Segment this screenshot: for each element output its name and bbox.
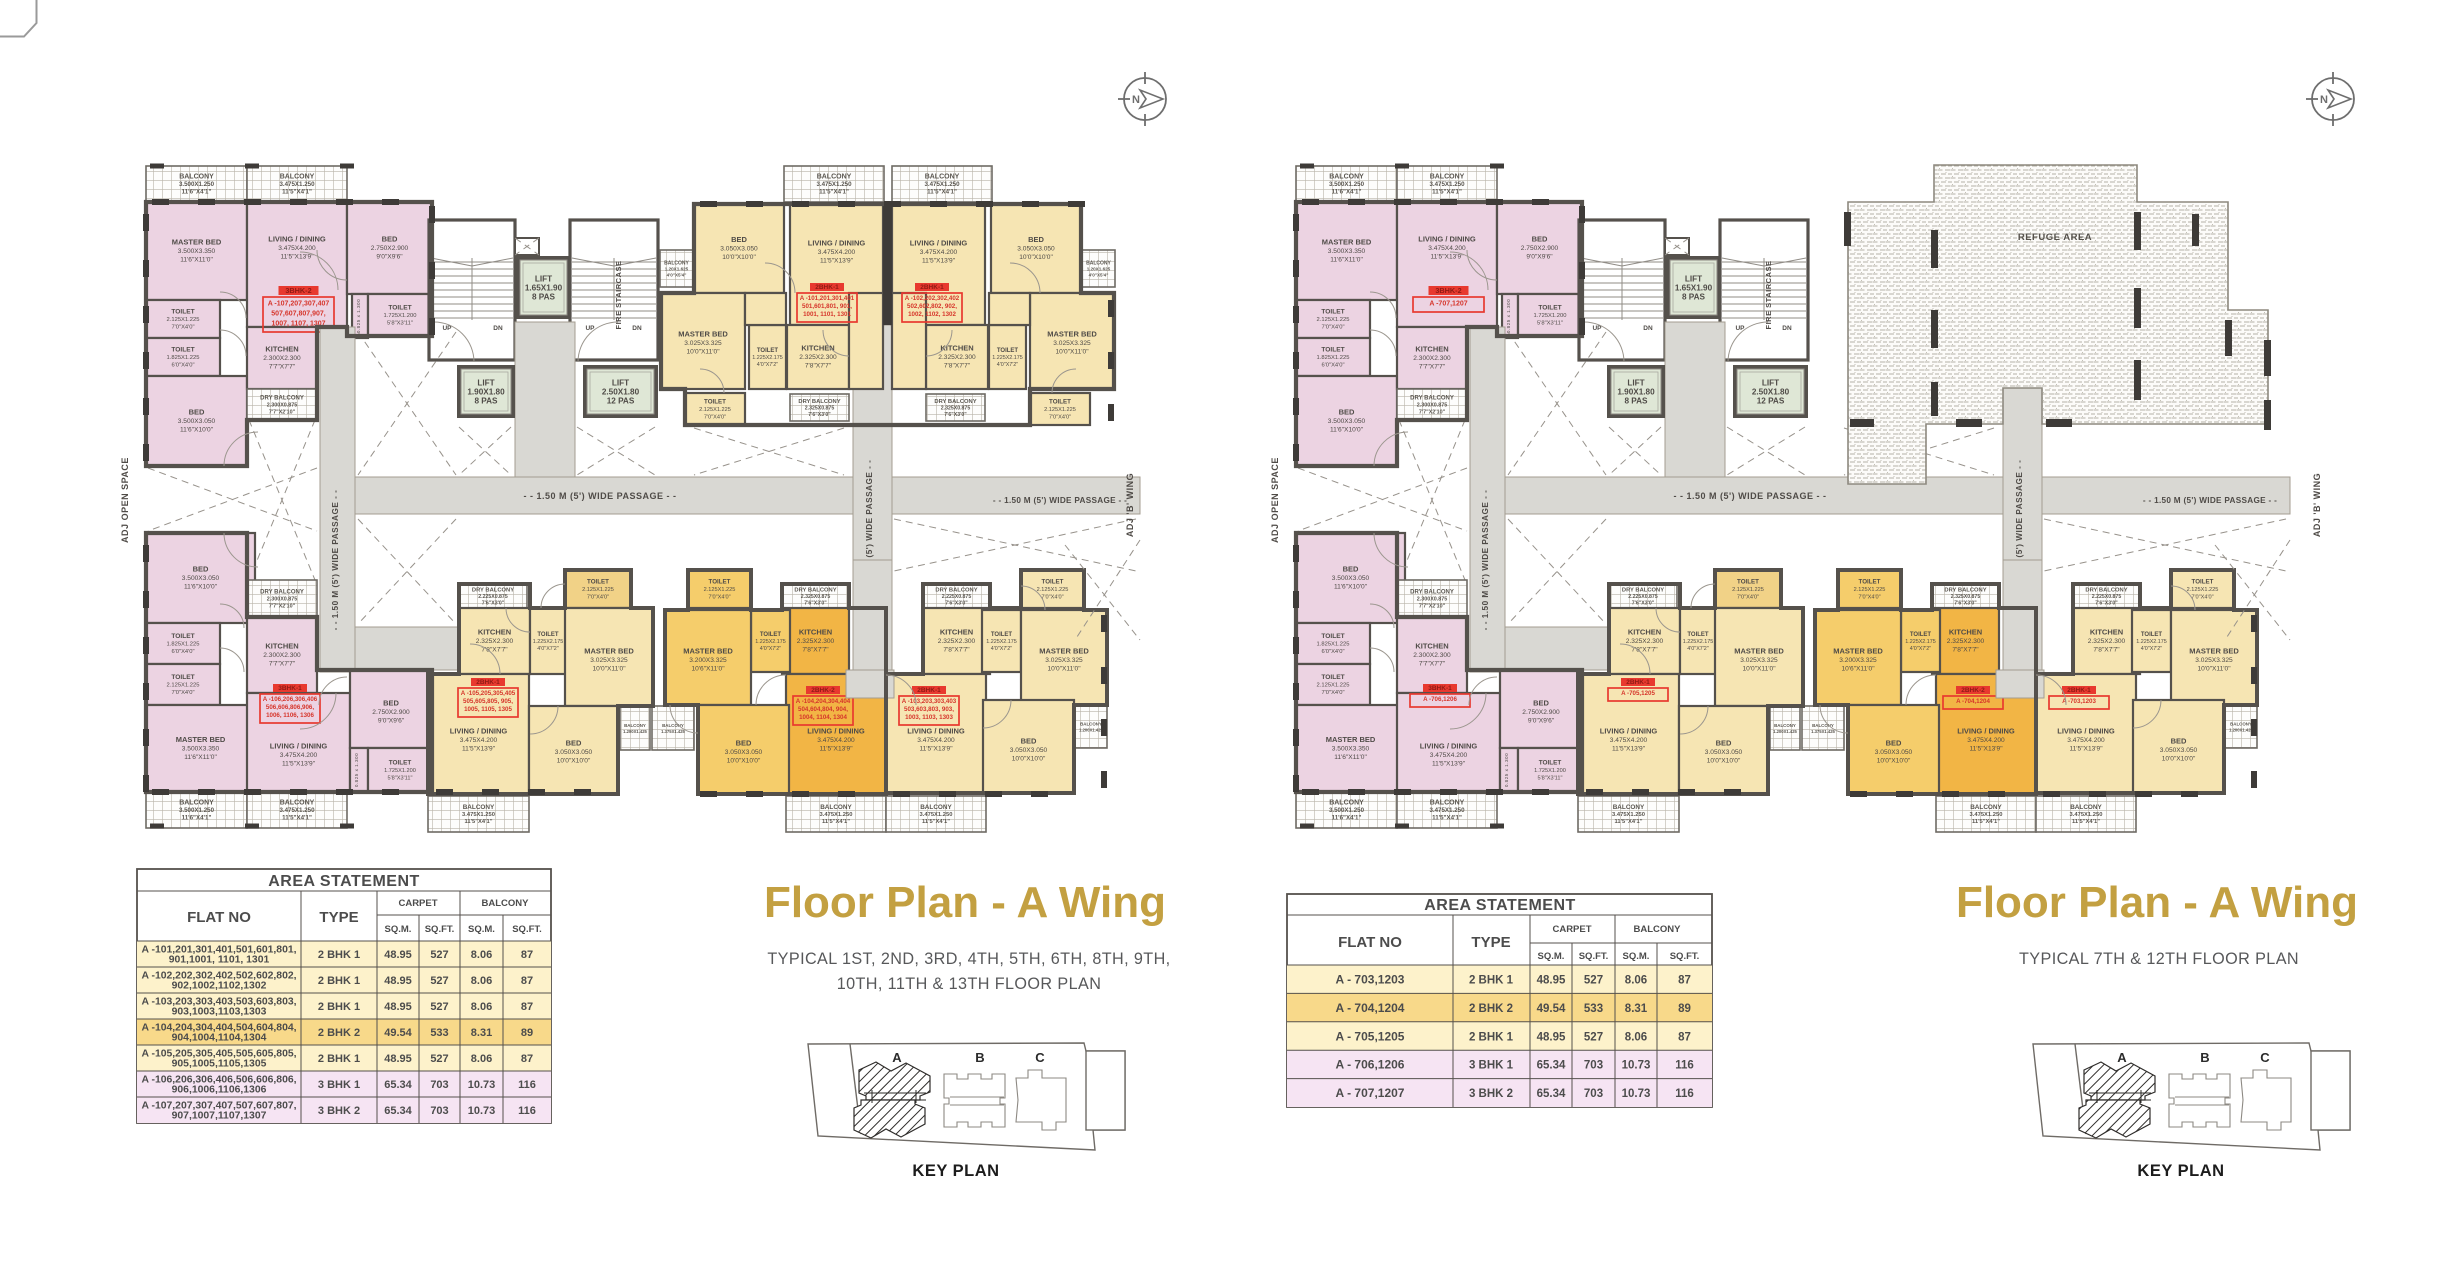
- svg-text:11'5"X4'1": 11'5"X4'1": [1615, 819, 1643, 825]
- svg-text:BED: BED: [189, 408, 205, 417]
- svg-text:3.500X1.250: 3.500X1.250: [179, 181, 215, 188]
- svg-text:BALCONY: BALCONY: [1430, 799, 1465, 806]
- svg-text:TYPICAL 7TH & 12TH FLOOR PLAN: TYPICAL 7TH & 12TH FLOOR PLAN: [2019, 950, 2299, 968]
- svg-text:3.500X3.050: 3.500X3.050: [1332, 575, 1370, 582]
- svg-text:BALCONY: BALCONY: [2070, 804, 2102, 811]
- svg-text:BED: BED: [1028, 235, 1044, 244]
- svg-text:KITCHEN: KITCHEN: [2090, 628, 2123, 637]
- svg-text:1002, 1102, 1302: 1002, 1102, 1302: [908, 311, 956, 318]
- svg-text:BALCONY: BALCONY: [817, 173, 852, 180]
- svg-text:1003, 1103, 1303: 1003, 1103, 1303: [905, 714, 953, 721]
- svg-text:KITCHEN: KITCHEN: [265, 642, 298, 651]
- svg-text:10.73: 10.73: [468, 1079, 496, 1091]
- svg-text:SQ.FT.: SQ.FT.: [1670, 951, 1700, 962]
- svg-text:6'0"X4'0": 6'0"X4'0": [171, 363, 194, 369]
- svg-text:3.475X1.250: 3.475X1.250: [924, 181, 960, 188]
- svg-text:10'0"X10'0": 10'0"X10'0": [1877, 757, 1911, 764]
- svg-text:7'6"X3'0": 7'6"X3'0": [808, 412, 831, 418]
- svg-text:10'0"X11'0": 10'0"X11'0": [1055, 348, 1089, 355]
- svg-text:1.65X1.90: 1.65X1.90: [525, 284, 563, 293]
- svg-text:TOILET: TOILET: [757, 348, 779, 354]
- svg-text:N: N: [1132, 94, 1140, 106]
- svg-text:10'0"X10'0": 10'0"X10'0": [557, 757, 591, 764]
- svg-text:7'8"X7'7": 7'8"X7'7": [2093, 646, 2120, 653]
- svg-text:A -101,201,301,401: A -101,201,301,401: [800, 295, 855, 302]
- svg-text:LIVING / DINING: LIVING / DINING: [1418, 235, 1476, 244]
- svg-text:2.300X0.875: 2.300X0.875: [1417, 403, 1448, 409]
- svg-text:KITCHEN: KITCHEN: [1628, 628, 1661, 637]
- svg-text:3.025X3.325: 3.025X3.325: [590, 657, 628, 664]
- svg-text:1.225X2.175: 1.225X2.175: [1905, 639, 1936, 645]
- svg-text:7'0"X4'0": 7'0"X4'0": [171, 325, 194, 331]
- svg-text:1.375X1.425: 1.375X1.425: [661, 729, 685, 734]
- svg-text:0.825 x 1.300: 0.825 x 1.300: [356, 299, 361, 333]
- svg-text:2.325X2.300: 2.325X2.300: [1947, 638, 1985, 645]
- svg-text:11'5"X4'1": 11'5"X4'1": [927, 189, 957, 196]
- svg-text:4'0"X7'2": 4'0"X7'2": [1910, 646, 1932, 652]
- svg-text:2.325X2.300: 2.325X2.300: [2088, 638, 2126, 645]
- svg-text:3.500X3.350: 3.500X3.350: [178, 248, 216, 255]
- svg-text:BED: BED: [1339, 408, 1355, 417]
- svg-text:DN: DN: [1643, 325, 1653, 332]
- svg-text:11'5"X13'9": 11'5"X13'9": [2069, 745, 2103, 752]
- svg-text:3.200X3.325: 3.200X3.325: [1839, 657, 1877, 664]
- svg-text:A - 707,1207: A - 707,1207: [1336, 1086, 1405, 1100]
- svg-text:2.300X2.300: 2.300X2.300: [263, 652, 301, 659]
- svg-text:5'8"X3'11": 5'8"X3'11": [1537, 321, 1563, 327]
- svg-text:2.125X1.225: 2.125X1.225: [582, 587, 614, 593]
- svg-text:- - 1.50 M (5') WIDE PASSAGE -: - - 1.50 M (5') WIDE PASSAGE - -: [993, 496, 1127, 505]
- svg-text:10'0"X10'0": 10'0"X10'0": [1707, 757, 1741, 764]
- svg-text:11'5"X4'1": 11'5"X4'1": [819, 189, 849, 196]
- svg-text:8 PAS: 8 PAS: [1624, 397, 1648, 406]
- svg-text:A: A: [892, 1050, 902, 1065]
- svg-text:BALCONY: BALCONY: [1080, 722, 1102, 727]
- svg-text:SQ.FT.: SQ.FT.: [512, 924, 542, 935]
- svg-text:REFUGE AREA: REFUGE AREA: [2018, 232, 2092, 243]
- svg-text:0.825 x 1.300: 0.825 x 1.300: [1504, 753, 1509, 787]
- svg-text:0.825 x 1.300: 0.825 x 1.300: [354, 753, 359, 787]
- svg-text:AREA STATEMENT: AREA STATEMENT: [268, 873, 420, 890]
- svg-text:49.54: 49.54: [384, 1027, 412, 1039]
- svg-text:905,1005,1105,1305: 905,1005,1105,1305: [172, 1059, 267, 1070]
- svg-text:1.200X1.425: 1.200X1.425: [1079, 727, 1103, 732]
- svg-text:MASTER BED: MASTER BED: [683, 647, 733, 656]
- svg-text:7'0"X4'0": 7'0"X4'0": [1737, 594, 1759, 600]
- svg-text:BALCONY: BALCONY: [1634, 924, 1682, 935]
- svg-text:2.750X2.900: 2.750X2.900: [1522, 709, 1560, 716]
- svg-text:TOILET: TOILET: [991, 632, 1013, 638]
- svg-text:1.90X1.80: 1.90X1.80: [1617, 388, 1655, 397]
- svg-text:2BHK-2: 2BHK-2: [1961, 687, 1985, 694]
- svg-text:2BHK-1: 2BHK-1: [476, 679, 500, 686]
- svg-text:LIVING / DINING: LIVING / DINING: [450, 727, 508, 736]
- svg-text:BALCONY: BALCONY: [1329, 799, 1364, 806]
- svg-text:2.225X0.875: 2.225X0.875: [478, 594, 508, 600]
- svg-text:DN: DN: [493, 325, 503, 332]
- svg-text:3.475X4.200: 3.475X4.200: [917, 737, 955, 744]
- svg-text:7'7"X7'7": 7'7"X7'7": [1419, 660, 1446, 667]
- svg-text:10'0"X11'0": 10'0"X11'0": [686, 348, 720, 355]
- svg-text:A -106,206,306,406: A -106,206,306,406: [263, 696, 318, 703]
- svg-text:BALCONY: BALCONY: [179, 799, 214, 806]
- svg-text:2.750X2.900: 2.750X2.900: [371, 245, 409, 252]
- svg-text:2.300X0.875: 2.300X0.875: [267, 597, 298, 603]
- svg-text:2BHK-1: 2BHK-1: [815, 284, 839, 291]
- svg-text:7'8"X7'7": 7'8"X7'7": [1631, 646, 1658, 653]
- svg-text:KEY PLAN: KEY PLAN: [912, 1162, 999, 1180]
- svg-text:BED: BED: [731, 235, 747, 244]
- svg-text:11'6"X11'0": 11'6"X11'0": [1334, 754, 1367, 761]
- svg-text:11'6"X4'1": 11'6"X4'1": [182, 189, 212, 196]
- svg-text:TOILET: TOILET: [1859, 579, 1881, 586]
- svg-text:3.500X1.250: 3.500X1.250: [1329, 181, 1365, 188]
- svg-text:LIFT: LIFT: [477, 378, 494, 387]
- svg-text:2 BHK 2: 2 BHK 2: [1469, 1003, 1513, 1015]
- svg-text:ADJ OPEN SPACE: ADJ OPEN SPACE: [1270, 457, 1280, 543]
- svg-text:BALCONY: BALCONY: [1970, 804, 2002, 811]
- svg-text:KITCHEN: KITCHEN: [940, 628, 973, 637]
- svg-text:527: 527: [1584, 1031, 1603, 1043]
- svg-text:2.325X2.300: 2.325X2.300: [938, 638, 976, 645]
- svg-text:TOILET: TOILET: [1538, 304, 1561, 311]
- svg-text:3.025X3.325: 3.025X3.325: [1053, 340, 1091, 347]
- svg-text:3.500X3.050: 3.500X3.050: [178, 418, 216, 425]
- svg-text:11'6"X4'1": 11'6"X4'1": [1332, 189, 1362, 196]
- svg-text:6'0"X4'0": 6'0"X4'0": [1321, 363, 1344, 369]
- svg-text:BALCONY: BALCONY: [179, 173, 214, 180]
- svg-text:LIVING / DINING: LIVING / DINING: [1600, 727, 1658, 736]
- svg-text:8 PAS: 8 PAS: [474, 397, 498, 406]
- svg-text:49.54: 49.54: [1537, 1003, 1566, 1015]
- svg-text:48.95: 48.95: [384, 1001, 412, 1013]
- svg-text:BALCONY: BALCONY: [2230, 722, 2252, 727]
- svg-text:1.90X1.80: 1.90X1.80: [467, 388, 505, 397]
- svg-text:11'5"X4'1": 11'5"X4'1": [465, 819, 493, 825]
- svg-text:LIVING / DINING: LIVING / DINING: [910, 239, 968, 248]
- svg-text:BALCONY: BALCONY: [920, 804, 952, 811]
- svg-text:3.475X1.250: 3.475X1.250: [1970, 812, 2003, 818]
- svg-text:3.025X3.325: 3.025X3.325: [1045, 657, 1083, 664]
- svg-text:11'5"X13'9": 11'5"X13'9": [820, 257, 854, 264]
- svg-text:2.225X0.875: 2.225X0.875: [1628, 594, 1658, 600]
- svg-text:3.475X4.200: 3.475X4.200: [1428, 245, 1466, 252]
- svg-text:BED: BED: [736, 739, 752, 748]
- svg-text:A - 704,1204: A - 704,1204: [1336, 1001, 1405, 1015]
- svg-text:A -103,203,303,403: A -103,203,303,403: [902, 698, 957, 705]
- svg-text:3.475X4.200: 3.475X4.200: [817, 737, 855, 744]
- svg-text:3.475X4.200: 3.475X4.200: [1430, 752, 1468, 759]
- svg-text:2BHK-1: 2BHK-1: [920, 284, 944, 291]
- svg-text:9'0"X9'6": 9'0"X9'6": [1526, 253, 1553, 260]
- svg-text:LIFT: LIFT: [1762, 378, 1779, 387]
- svg-text:TOILET: TOILET: [1321, 674, 1344, 681]
- svg-text:8.31: 8.31: [1625, 1003, 1648, 1015]
- svg-text:527: 527: [430, 1053, 448, 1065]
- svg-text:BED: BED: [1886, 739, 1902, 748]
- svg-text:7'0"X4'0": 7'0"X4'0": [1321, 690, 1344, 696]
- svg-text:7'7"X2'10": 7'7"X2'10": [269, 409, 296, 415]
- svg-text:7'6"X3'0": 7'6"X3'0": [804, 601, 827, 607]
- svg-text:2.125X1.225: 2.125X1.225: [1854, 587, 1886, 593]
- svg-text:A -706,1206: A -706,1206: [1423, 696, 1457, 703]
- svg-text:11'6"X11'0": 11'6"X11'0": [184, 754, 217, 761]
- svg-text:1.825X1.225: 1.825X1.225: [1317, 642, 1350, 648]
- svg-text:TOILET: TOILET: [389, 760, 412, 767]
- svg-text:3.025X3.325: 3.025X3.325: [684, 340, 722, 347]
- svg-text:BALCONY: BALCONY: [1329, 173, 1364, 180]
- svg-text:A -705,1205: A -705,1205: [1621, 690, 1655, 697]
- svg-text:3.475X1.250: 3.475X1.250: [462, 812, 495, 818]
- svg-text:4'0"X7'2": 4'0"X7'2": [991, 646, 1013, 652]
- svg-text:DRY BALCONY: DRY BALCONY: [1622, 587, 1664, 593]
- svg-text:3.050X3.050: 3.050X3.050: [1705, 749, 1743, 756]
- svg-text:DRY BALCONY: DRY BALCONY: [798, 399, 840, 405]
- svg-text:KITCHEN: KITCHEN: [1415, 345, 1448, 354]
- svg-text:3.475X4.200: 3.475X4.200: [1967, 737, 2005, 744]
- svg-text:ADJ 'B' WING: ADJ 'B' WING: [1125, 473, 1135, 537]
- svg-text:- - 1.50 M (5') WIDE PASSAGE -: - - 1.50 M (5') WIDE PASSAGE - -: [1674, 491, 1827, 501]
- svg-text:2.750X2.900: 2.750X2.900: [1521, 245, 1559, 252]
- svg-text:4'0"X5'4": 4'0"X5'4": [1089, 273, 1109, 278]
- svg-text:2.125X1.225: 2.125X1.225: [1317, 683, 1350, 689]
- svg-text:3.500X3.350: 3.500X3.350: [182, 746, 220, 753]
- svg-text:5'8"X3'11": 5'8"X3'11": [1538, 775, 1563, 781]
- svg-text:65.34: 65.34: [1537, 1060, 1566, 1072]
- svg-text:4'0"X7'2": 4'0"X7'2": [2141, 646, 2163, 652]
- svg-text:89: 89: [521, 1027, 533, 1039]
- svg-text:3.500X3.050: 3.500X3.050: [182, 575, 220, 582]
- svg-text:7'6"X3'0": 7'6"X3'0": [2095, 601, 2118, 607]
- svg-text:7'7"X2'10": 7'7"X2'10": [1419, 603, 1446, 609]
- svg-text:N: N: [2320, 94, 2328, 106]
- svg-text:LIVING / DINING: LIVING / DINING: [268, 235, 326, 244]
- svg-text:3BHK-2: 3BHK-2: [1435, 286, 1461, 295]
- svg-text:7'7"X7'7": 7'7"X7'7": [269, 660, 296, 667]
- svg-text:TOILET: TOILET: [171, 308, 194, 315]
- svg-text:65.34: 65.34: [384, 1105, 412, 1117]
- svg-text:8.06: 8.06: [1625, 1031, 1647, 1043]
- svg-text:3.475X1.250: 3.475X1.250: [279, 181, 315, 188]
- svg-text:DRY BALCONY: DRY BALCONY: [1410, 396, 1454, 402]
- svg-text:507,607,807,907,: 507,607,807,907,: [271, 311, 326, 318]
- svg-text:C: C: [1035, 1050, 1045, 1065]
- svg-text:2.750X2.900: 2.750X2.900: [372, 709, 410, 716]
- svg-text:904,1004,1104,1304: 904,1004,1104,1304: [172, 1033, 267, 1044]
- svg-text:A -102,202,302,402: A -102,202,302,402: [905, 295, 960, 302]
- svg-text:MASTER BED: MASTER BED: [172, 238, 222, 247]
- svg-text:LIVING / DINING: LIVING / DINING: [2057, 727, 2115, 736]
- svg-text:2.325X2.300: 2.325X2.300: [799, 354, 837, 361]
- svg-text:1.725X1.200: 1.725X1.200: [1534, 313, 1567, 319]
- svg-text:87: 87: [521, 1053, 533, 1065]
- svg-text:TYPE: TYPE: [1471, 934, 1510, 951]
- svg-text:KITCHEN: KITCHEN: [265, 345, 298, 354]
- svg-text:48.95: 48.95: [1537, 1031, 1566, 1043]
- svg-text:48.95: 48.95: [384, 949, 412, 961]
- svg-text:65.34: 65.34: [1537, 1088, 1566, 1100]
- svg-text:116: 116: [518, 1079, 536, 1091]
- svg-text:2.50X1.80: 2.50X1.80: [1752, 388, 1790, 397]
- svg-text:LIVING / DINING: LIVING / DINING: [808, 239, 866, 248]
- svg-text:3BHK-1: 3BHK-1: [1428, 685, 1452, 692]
- svg-text:3BHK-1: 3BHK-1: [278, 685, 302, 692]
- svg-text:MASTER BED: MASTER BED: [2189, 647, 2239, 656]
- svg-text:7'8"X7'7": 7'8"X7'7": [1952, 646, 1979, 653]
- svg-text:2.125X1.225: 2.125X1.225: [1732, 587, 1764, 593]
- svg-text:2.300X0.875: 2.300X0.875: [1417, 597, 1448, 603]
- svg-text:BALCONY: BALCONY: [820, 804, 852, 811]
- svg-text:8.06: 8.06: [1625, 975, 1647, 987]
- svg-text:MASTER BED: MASTER BED: [678, 330, 728, 339]
- svg-text:3.050X3.050: 3.050X3.050: [1017, 246, 1055, 253]
- svg-text:2.125X1.225: 2.125X1.225: [167, 317, 200, 323]
- svg-text:3.050X3.050: 3.050X3.050: [720, 246, 758, 253]
- svg-text:KEY PLAN: KEY PLAN: [2137, 1162, 2224, 1180]
- svg-text:SQ.M.: SQ.M.: [1623, 951, 1650, 962]
- svg-text:11'5"X4'1": 11'5"X4'1": [282, 189, 312, 196]
- svg-text:2.125X1.225: 2.125X1.225: [167, 683, 200, 689]
- svg-text:DRY BALCONY: DRY BALCONY: [935, 587, 977, 593]
- svg-text:11'5"X4'1": 11'5"X4'1": [2072, 819, 2100, 825]
- svg-text:DRY BALCONY: DRY BALCONY: [260, 590, 304, 596]
- svg-text:A -703,1203: A -703,1203: [2062, 698, 2096, 705]
- svg-text:1001, 1101, 1301: 1001, 1101, 1301: [803, 311, 851, 318]
- svg-text:SQ.FT.: SQ.FT.: [425, 924, 455, 935]
- svg-text:2.50X1.80: 2.50X1.80: [602, 388, 640, 397]
- svg-text:BED: BED: [2171, 737, 2187, 746]
- svg-text:8.06: 8.06: [471, 949, 492, 961]
- svg-text:BED: BED: [383, 699, 399, 708]
- svg-text:MASTER BED: MASTER BED: [584, 647, 634, 656]
- svg-text:MASTER BED: MASTER BED: [1326, 735, 1376, 744]
- svg-text:11'6"X10'0": 11'6"X10'0": [1330, 426, 1364, 433]
- svg-text:116: 116: [518, 1105, 536, 1117]
- svg-text:DRY BALCONY: DRY BALCONY: [472, 587, 514, 593]
- svg-text:TOILET: TOILET: [1049, 399, 1071, 406]
- svg-text:3.475X4.200: 3.475X4.200: [818, 249, 856, 256]
- svg-text:1.725X1.200: 1.725X1.200: [384, 313, 417, 319]
- svg-text:BED: BED: [1021, 737, 1037, 746]
- svg-text:3.050X3.050: 3.050X3.050: [1010, 747, 1048, 754]
- svg-text:3.475X4.200: 3.475X4.200: [278, 245, 316, 252]
- svg-text:CARPET: CARPET: [398, 898, 437, 909]
- svg-text:A -105,205,305,405: A -105,205,305,405: [461, 690, 516, 697]
- svg-text:7'7"X7'7": 7'7"X7'7": [269, 363, 296, 370]
- svg-text:2.325X2.300: 2.325X2.300: [476, 638, 514, 645]
- svg-text:87: 87: [521, 1001, 533, 1013]
- svg-text:48.95: 48.95: [384, 1053, 412, 1065]
- svg-text:TOILET: TOILET: [1042, 579, 1064, 586]
- svg-text:ADJ OPEN SPACE: ADJ OPEN SPACE: [120, 457, 130, 543]
- svg-text:- - 1.50 M (5') WIDE PASSAGE -: - - 1.50 M (5') WIDE PASSAGE - -: [1481, 490, 1490, 631]
- svg-text:DRY BALCONY: DRY BALCONY: [1410, 590, 1454, 596]
- svg-text:7'0"X4'0": 7'0"X4'0": [1321, 325, 1344, 331]
- svg-text:1005, 1105, 1305: 1005, 1105, 1305: [464, 706, 512, 713]
- svg-text:3 BHK 2: 3 BHK 2: [318, 1105, 360, 1117]
- svg-text:LIFT: LIFT: [612, 378, 629, 387]
- svg-text:1.225X2.175: 1.225X2.175: [533, 639, 564, 645]
- svg-text:LIVING / DINING: LIVING / DINING: [907, 727, 965, 736]
- svg-text:BALCONY: BALCONY: [1613, 804, 1645, 811]
- svg-text:7'0"X4'0": 7'0"X4'0": [1041, 594, 1063, 600]
- svg-text:FIRE STAIRCASE: FIRE STAIRCASE: [614, 261, 623, 330]
- svg-text:TOILET: TOILET: [1910, 632, 1932, 638]
- svg-text:A -704,1204: A -704,1204: [1956, 698, 1990, 705]
- svg-text:1.225X2.175: 1.225X2.175: [2136, 639, 2167, 645]
- svg-text:48.95: 48.95: [1537, 975, 1566, 987]
- svg-text:11'5"X13'9": 11'5"X13'9": [282, 760, 316, 767]
- svg-text:9'0"X9'6": 9'0"X9'6": [376, 253, 403, 260]
- svg-text:3.050X3.050: 3.050X3.050: [725, 749, 763, 756]
- svg-text:BED: BED: [1533, 699, 1549, 708]
- svg-text:3.475X4.200: 3.475X4.200: [1610, 737, 1648, 744]
- svg-text:MASTER BED: MASTER BED: [1734, 647, 1784, 656]
- svg-text:10.73: 10.73: [468, 1105, 496, 1117]
- svg-text:1.200X1.425: 1.200X1.425: [623, 729, 647, 734]
- svg-text:SQ.M.: SQ.M.: [1538, 951, 1565, 962]
- svg-text:10'0"X10'0": 10'0"X10'0": [2162, 755, 2196, 762]
- svg-text:1.225X2.175: 1.225X2.175: [986, 639, 1017, 645]
- svg-text:7'0"X4'0": 7'0"X4'0": [171, 690, 194, 696]
- svg-text:505,605,805, 905,: 505,605,805, 905,: [463, 698, 513, 705]
- svg-text:A - 703,1203: A - 703,1203: [1336, 973, 1405, 987]
- svg-text:1.200X1.425: 1.200X1.425: [2229, 727, 2253, 732]
- svg-text:7'0"X4'0": 7'0"X4'0": [1049, 414, 1071, 420]
- svg-text:1004, 1104, 1304: 1004, 1104, 1304: [799, 714, 847, 721]
- svg-text:2.225X0.875: 2.225X0.875: [2092, 594, 2122, 600]
- svg-text:3 BHK 1: 3 BHK 1: [318, 1079, 360, 1091]
- svg-text:SQ.FT.: SQ.FT.: [1579, 951, 1609, 962]
- svg-text:TOILET: TOILET: [587, 579, 609, 586]
- svg-text:UP: UP: [585, 325, 595, 332]
- svg-text:KITCHEN: KITCHEN: [1415, 642, 1448, 651]
- svg-text:B: B: [975, 1050, 984, 1065]
- svg-text:2 BHK 1: 2 BHK 1: [318, 949, 360, 961]
- svg-text:3.475X4.200: 3.475X4.200: [920, 249, 958, 256]
- svg-text:1.375X1.425: 1.375X1.425: [1811, 729, 1835, 734]
- svg-text:- - 1.50 M (5') WIDE PASSAGE -: - - 1.50 M (5') WIDE PASSAGE - -: [524, 491, 677, 501]
- svg-text:12 PAS: 12 PAS: [607, 397, 635, 406]
- svg-text:6'0"X4'0": 6'0"X4'0": [171, 649, 194, 655]
- svg-text:2.300X2.300: 2.300X2.300: [1413, 652, 1451, 659]
- svg-text:1.725X1.200: 1.725X1.200: [384, 768, 416, 774]
- svg-text:11'5"X13'9": 11'5"X13'9": [280, 253, 314, 260]
- svg-text:12 PAS: 12 PAS: [1757, 397, 1785, 406]
- svg-text:2BHK-2: 2BHK-2: [811, 687, 835, 694]
- svg-text:3.475X4.200: 3.475X4.200: [460, 737, 498, 744]
- svg-text:LIFT: LIFT: [1627, 378, 1644, 387]
- svg-text:2.325X2.300: 2.325X2.300: [1626, 638, 1664, 645]
- svg-text:3.025X3.325: 3.025X3.325: [2195, 657, 2233, 664]
- svg-text:11'5"X13'9": 11'5"X13'9": [819, 745, 853, 752]
- svg-text:FLAT NO: FLAT NO: [187, 909, 251, 926]
- svg-text:1.65X1.90: 1.65X1.90: [1675, 284, 1713, 293]
- svg-text:902,1002,1102,1302: 902,1002,1102,1302: [172, 981, 267, 992]
- svg-text:11'5"X13'9": 11'5"X13'9": [922, 257, 956, 264]
- svg-text:1.225X2.175: 1.225X2.175: [1683, 639, 1714, 645]
- svg-text:LIFT: LIFT: [535, 274, 552, 283]
- svg-text:ADJ 'B' WING: ADJ 'B' WING: [2312, 473, 2322, 537]
- svg-text:11'5"X13'9": 11'5"X13'9": [1969, 745, 2003, 752]
- svg-text:2 BHK 1: 2 BHK 1: [318, 975, 360, 987]
- svg-text:3.200X3.325: 3.200X3.325: [689, 657, 727, 664]
- svg-text:BALCONY: BALCONY: [925, 173, 960, 180]
- svg-text:Floor Plan - A Wing: Floor Plan - A Wing: [1956, 878, 2358, 927]
- svg-text:504,604,804, 904,: 504,604,804, 904,: [798, 706, 848, 713]
- svg-text:7'8"X7'7": 7'8"X7'7": [944, 362, 971, 369]
- svg-text:503,603,803, 903,: 503,603,803, 903,: [904, 706, 954, 713]
